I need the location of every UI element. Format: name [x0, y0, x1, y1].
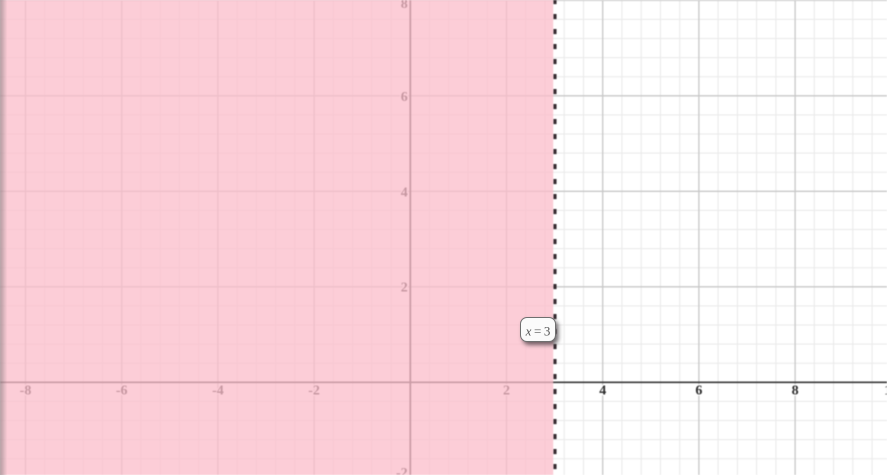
svg-text:6: 6 [695, 384, 702, 399]
svg-text:4: 4 [599, 384, 606, 399]
svg-text:8: 8 [792, 384, 799, 399]
